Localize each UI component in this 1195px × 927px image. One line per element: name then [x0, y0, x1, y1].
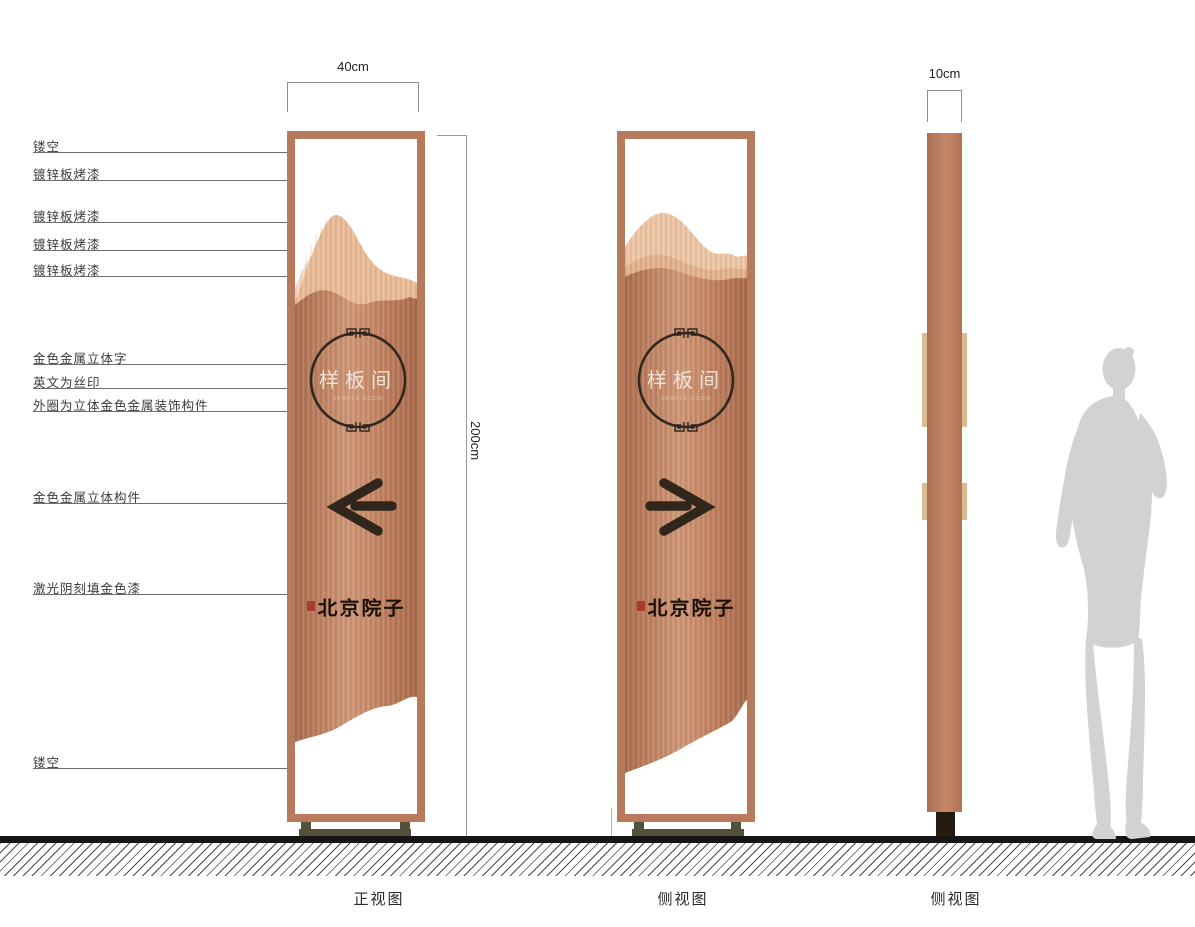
ground-line	[0, 836, 1195, 843]
human-figure-silhouette	[1040, 345, 1175, 841]
room-name-english-text: SAMPLE ROOM	[333, 396, 384, 402]
front-panel-graphic: 样板间 SAMPLE ROOM	[295, 139, 417, 814]
arrow-depth-trim	[922, 483, 927, 520]
profile-view-bar	[927, 133, 962, 812]
side-view-panel: 样板间 SAMPLE ROOM	[617, 131, 755, 822]
brand-logo: 北京院子	[295, 593, 417, 619]
view-caption-side-2: 侧视图	[901, 888, 1011, 909]
arrow-depth-trim	[962, 483, 967, 520]
width-dimension-bracket	[287, 82, 419, 112]
callout-leader-line	[33, 222, 322, 223]
view-caption-front: 正视图	[324, 888, 434, 909]
height-dimension-label: 200cm	[468, 421, 483, 460]
front-view-panel: 样板间 SAMPLE ROOM	[287, 131, 425, 822]
brand-logo-text: 北京院子	[648, 592, 736, 620]
brand-logo: 北京院子	[625, 593, 747, 619]
red-seal-icon	[637, 601, 645, 611]
callout-leader-line	[33, 411, 317, 412]
callout-leader-line	[33, 276, 293, 277]
profile-base-foot	[936, 812, 955, 838]
brushed-texture-overlay	[295, 215, 417, 742]
callout-leader-line	[33, 768, 303, 769]
height-dimension-tick	[437, 135, 466, 136]
callout-leader-line	[33, 152, 307, 153]
ground-hatch	[0, 843, 1195, 876]
callout-leader-line	[33, 250, 293, 251]
side-panel-graphic: 样板间 SAMPLE ROOM	[625, 139, 747, 814]
view-caption-side-1: 侧视图	[628, 888, 738, 909]
signage-technical-drawing: 镂空 镀锌板烤漆 镀锌板烤漆 镀锌板烤漆 镀锌板烤漆 金色金属立体字 英文为丝印…	[0, 0, 1195, 927]
height-dimension-line	[466, 135, 467, 836]
depth-dimension-bracket	[927, 90, 962, 122]
brand-logo-text: 北京院子	[318, 592, 406, 620]
ring-depth-trim	[922, 333, 927, 427]
room-name-text: 样板间	[319, 369, 397, 392]
depth-dimension-label: 10cm	[927, 66, 962, 81]
red-seal-icon	[307, 601, 315, 611]
room-name-text: 样板间	[647, 369, 725, 392]
width-dimension-label: 40cm	[287, 59, 419, 74]
ring-depth-trim	[962, 333, 967, 427]
callout-leader-line	[33, 180, 313, 181]
room-name-english-text: SAMPLE ROOM	[661, 396, 712, 402]
